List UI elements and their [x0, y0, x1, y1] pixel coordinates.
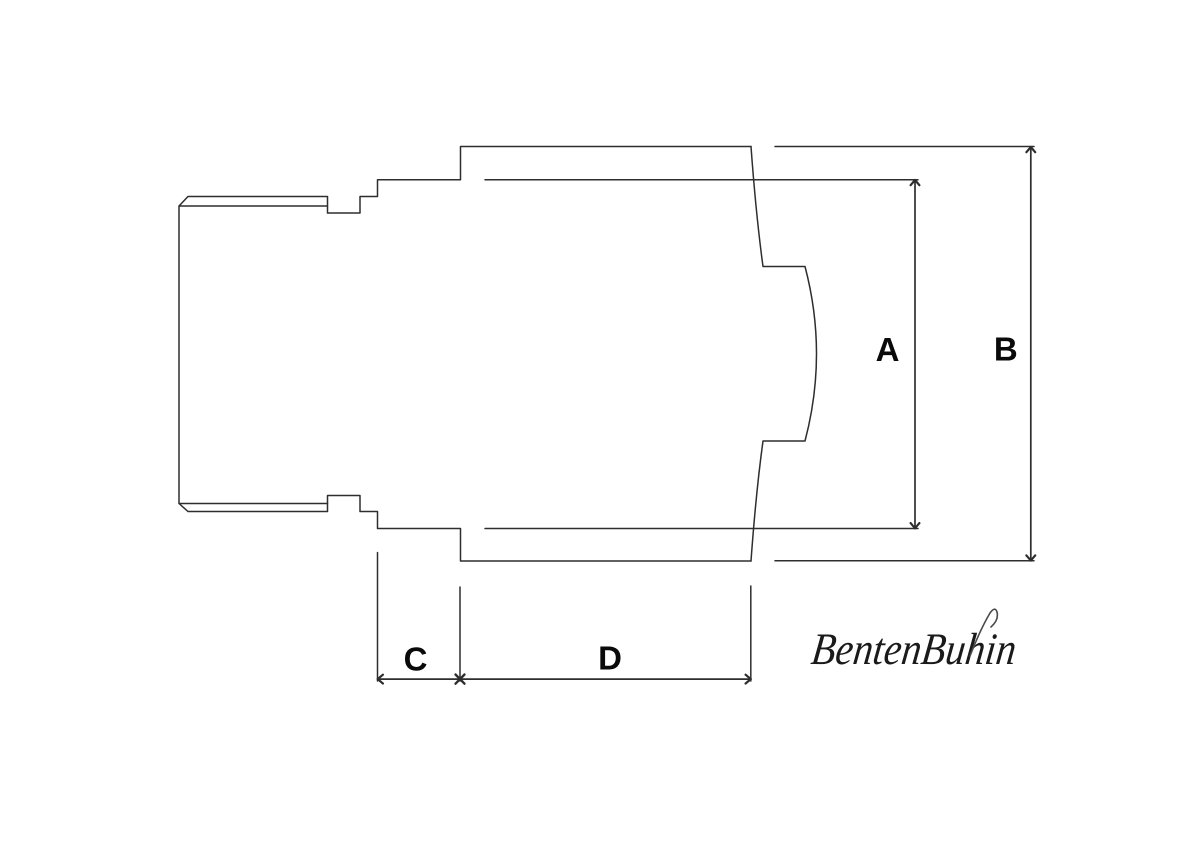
svg-text:A: A — [876, 331, 900, 368]
svg-text:BentenBuhin: BentenBuhin — [809, 625, 1020, 675]
svg-text:C: C — [404, 641, 428, 678]
svg-text:B: B — [994, 331, 1018, 368]
svg-text:D: D — [598, 640, 622, 677]
